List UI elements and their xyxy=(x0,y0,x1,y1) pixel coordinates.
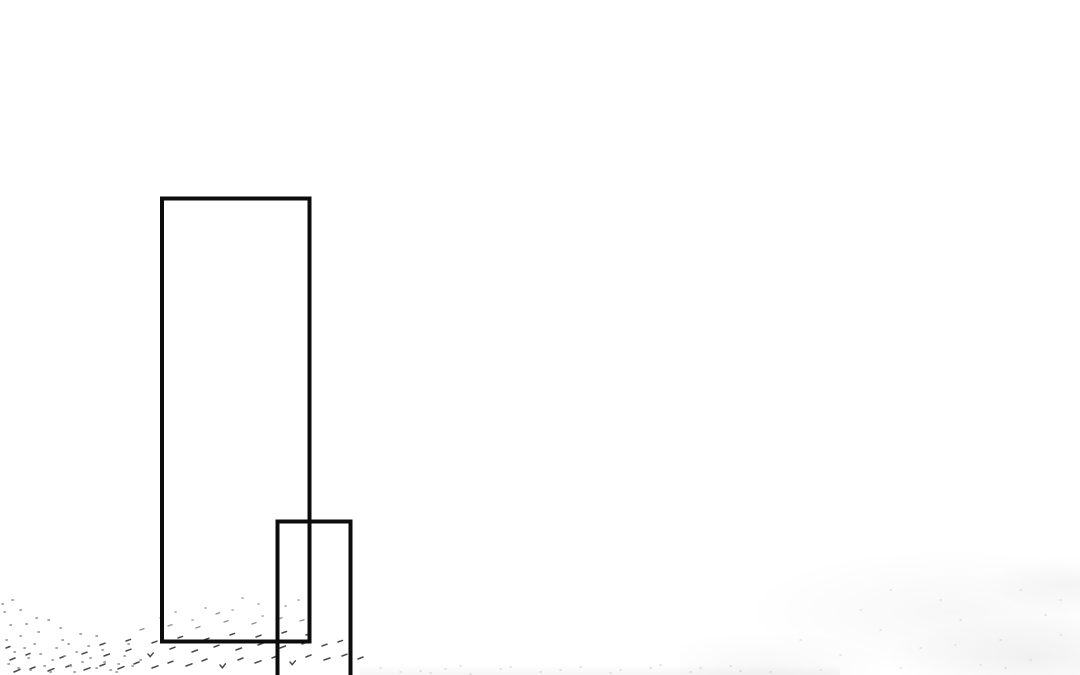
faint-bottom-speckle xyxy=(380,665,741,674)
stipple-bottom-left xyxy=(2,600,141,672)
artwork-canvas xyxy=(0,0,1080,675)
panel-outline-tall xyxy=(162,199,310,642)
sparse-dots-upper xyxy=(175,598,299,620)
comic-page xyxy=(0,0,1080,675)
panel-outline-small xyxy=(278,522,351,675)
faint-corner-speckle xyxy=(770,590,1061,672)
